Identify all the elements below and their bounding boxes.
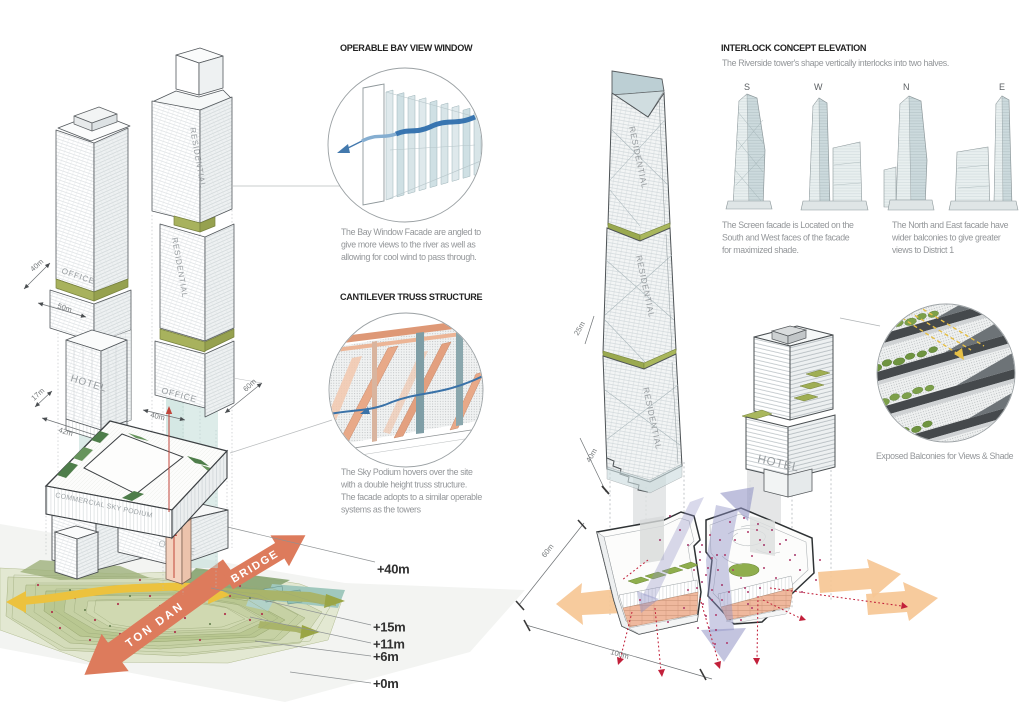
svg-text:CANTILEVER TRUSS STRUCTURE: CANTILEVER TRUSS STRUCTURE [340,292,482,302]
svg-text:wider balconies to give greate: wider balconies to give greater [891,233,1001,243]
svg-text:40m: 40m [584,447,599,464]
svg-text:The Sky Podium hovers over the: The Sky Podium hovers over the site [341,467,473,477]
svg-text:40m: 40m [28,257,45,273]
svg-text:40m: 40m [150,410,166,422]
svg-text:60m: 60m [241,377,258,394]
svg-text:+0m: +0m [373,676,398,691]
svg-text:with a double height truss str: with a double height truss structure. [340,480,467,490]
svg-text:for maximized shade.: for maximized shade. [722,245,799,255]
svg-text:give more views to the river a: give more views to the river as well as [341,240,476,250]
svg-text:The Riverside tower's shape ve: The Riverside tower's shape vertically i… [722,58,949,68]
svg-text:INTERLOCK CONCEPT ELEVATION: INTERLOCK CONCEPT ELEVATION [721,43,866,53]
svg-text:allowing for cool wind to pass: allowing for cool wind to pass through. [341,252,477,262]
svg-text:25m: 25m [572,320,587,337]
svg-text:N: N [903,82,910,92]
svg-text:South and West faces of the fa: South and West faces of the facade [722,233,850,243]
svg-text:60m: 60m [539,542,555,559]
svg-text:The North and East facade have: The North and East facade have [892,220,1009,230]
svg-text:+40m: +40m [377,562,409,577]
svg-text:The Bay Window Facade are angl: The Bay Window Facade are angled to [341,227,481,237]
svg-text:17m: 17m [29,386,46,402]
svg-text:The Screen facade is Located o: The Screen facade is Located on the [722,220,854,230]
svg-text:W: W [814,82,823,92]
svg-text:+15m: +15m [373,620,405,635]
svg-text:OPERABLE BAY VIEW WINDOW: OPERABLE BAY VIEW WINDOW [340,43,473,53]
svg-text:+6m: +6m [373,649,398,664]
svg-text:Exposed Balconies for Views &: Exposed Balconies for Views & Shade [876,451,1014,461]
svg-text:views to District 1: views to District 1 [892,245,954,255]
svg-text:S: S [744,82,750,92]
svg-text:systems as the towers: systems as the towers [341,505,422,515]
svg-text:The facade adopts to a similar: The facade adopts to a similar operable [341,492,482,502]
svg-text:E: E [999,82,1005,92]
